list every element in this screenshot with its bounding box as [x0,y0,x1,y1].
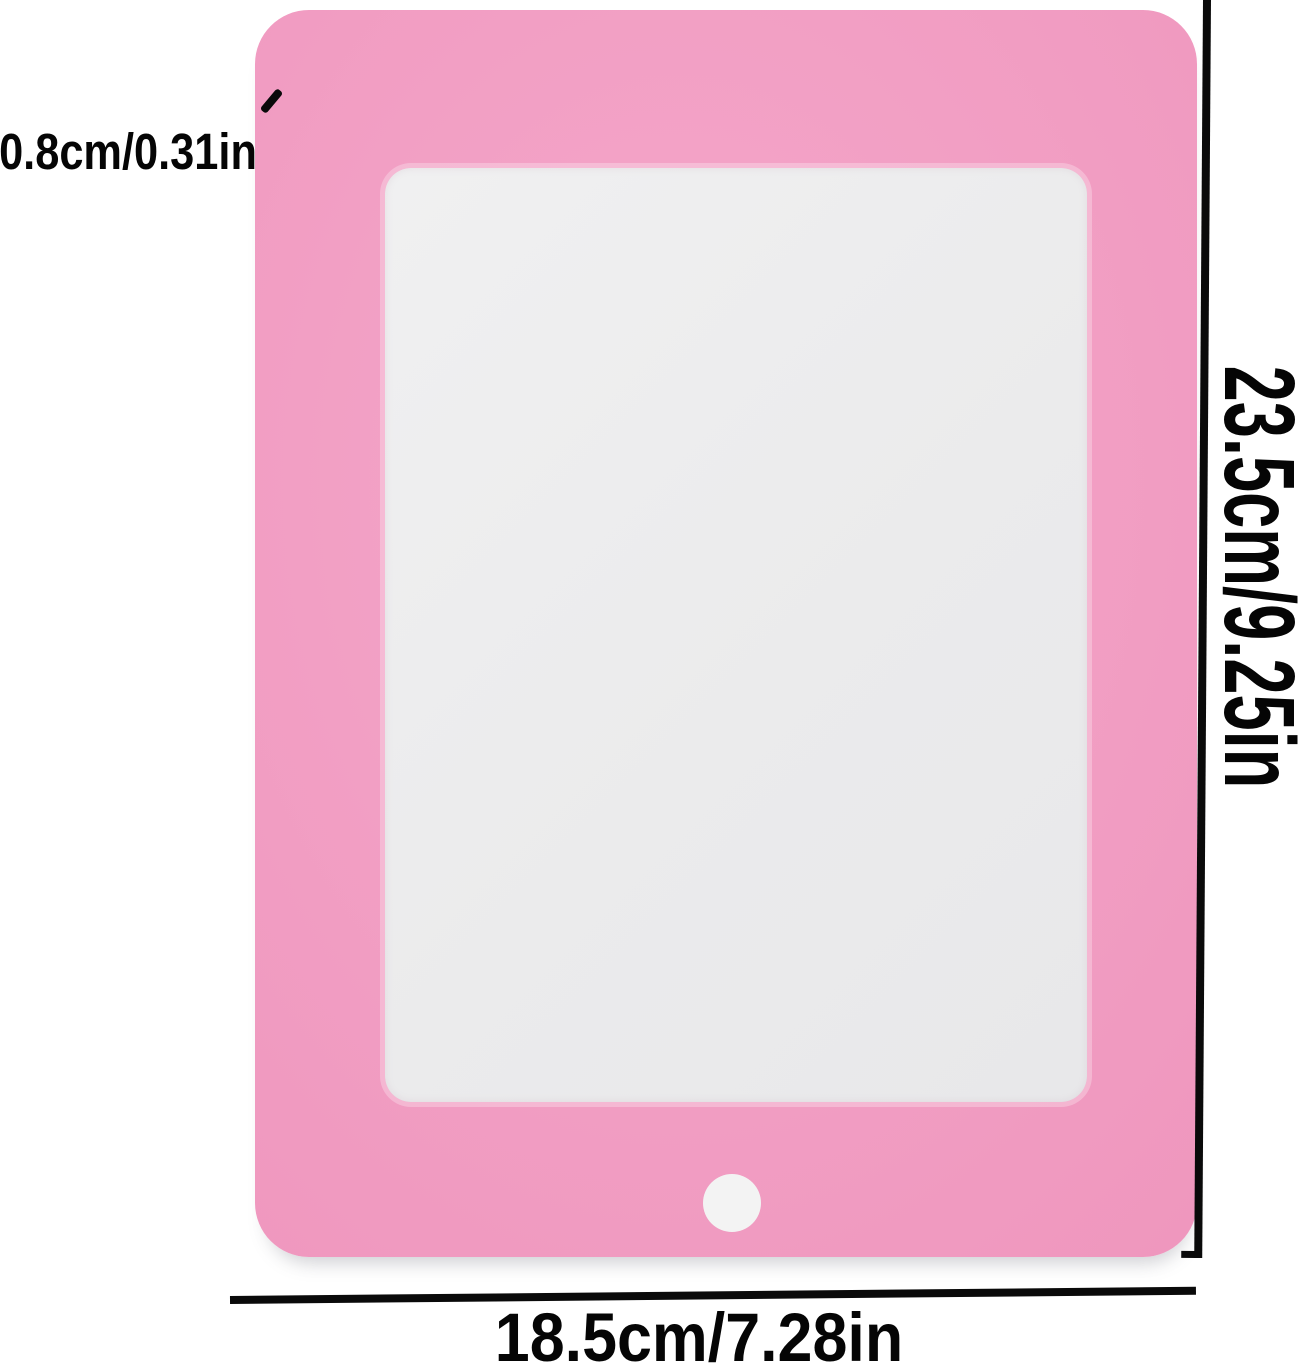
tablet-screen [385,168,1087,1102]
width-label: 18.5cm/7.28in [495,1300,903,1367]
thickness-label: 0.8cm/0.31in [0,124,257,180]
home-button [703,1174,761,1232]
tablet-frame [255,10,1197,1257]
product-dimension-image: 0.8cm/0.31in 23.5cm/9.25in 18.5cm/7.28in [0,0,1298,1367]
height-label: 23.5cm/9.25in [1204,366,1298,789]
